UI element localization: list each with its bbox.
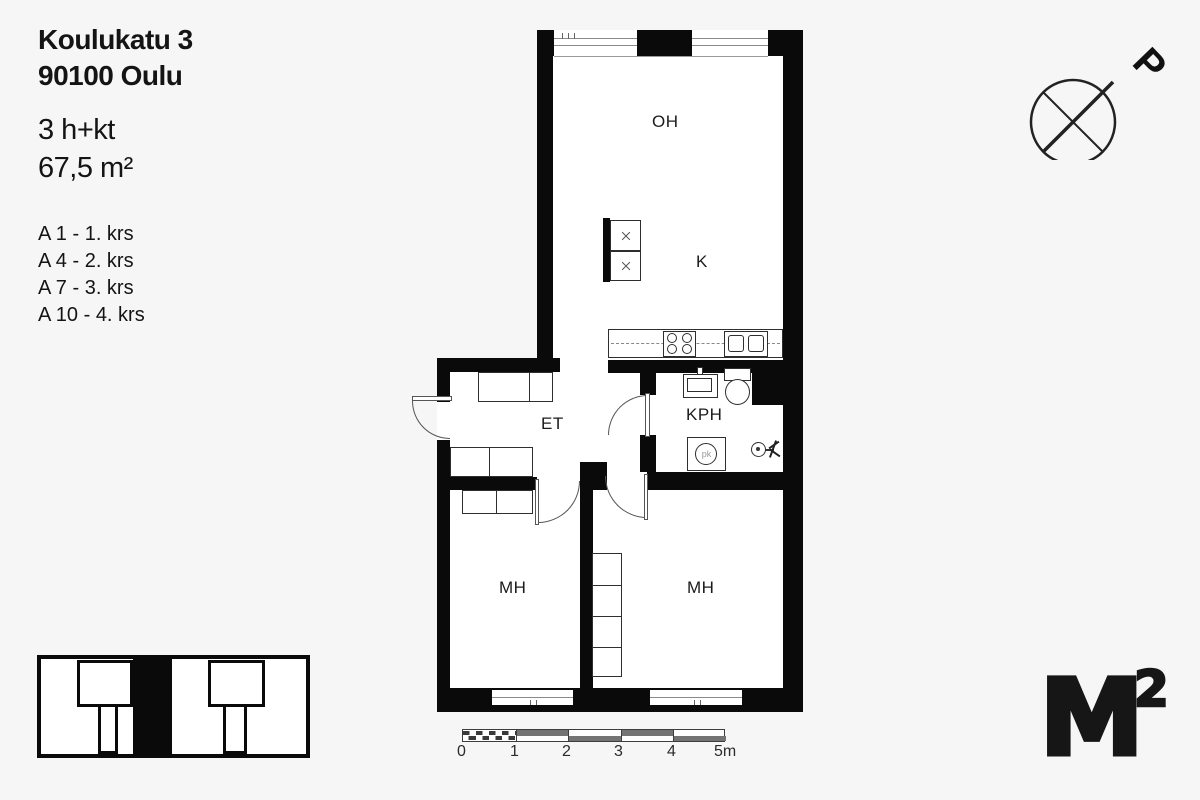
scale-segment <box>516 730 569 736</box>
address-line2: 90100 Oulu <box>38 58 193 94</box>
window <box>554 30 637 56</box>
scale-segment <box>621 730 674 736</box>
unit-floor-3: A 10 - 4. krs <box>38 302 193 329</box>
scale-tick-0: 0 <box>457 743 466 761</box>
kph-door-leaf <box>645 393 650 437</box>
unit-floor-0: A 1 - 1. krs <box>38 221 193 248</box>
wall <box>647 472 783 490</box>
address-line1: Koulukatu 3 <box>38 22 193 58</box>
shower-valve-icon <box>751 442 766 457</box>
locator-unit <box>208 660 265 707</box>
wall <box>640 435 656 475</box>
scale-tick-4: 4 <box>667 743 676 761</box>
scale-tick-1: 1 <box>510 743 519 761</box>
fridge-icon <box>610 220 641 251</box>
washing-machine-label: pk <box>688 449 725 459</box>
wall <box>783 30 803 712</box>
wall <box>537 30 553 360</box>
m2-logo-exponent: 2 <box>1134 660 1169 718</box>
wall <box>437 477 537 490</box>
kitchen-sink-icon <box>724 331 768 357</box>
apartment-type: 3 h+kt <box>38 111 193 149</box>
room-label-mh1: MH <box>499 578 526 598</box>
passage-area <box>556 356 610 374</box>
m2-logo: M 2 <box>1040 660 1180 770</box>
wall <box>437 358 560 372</box>
wardrobe-column <box>592 553 622 677</box>
room-label-et: ET <box>541 414 564 434</box>
header-block: Koulukatu 3 90100 Oulu 3 h+kt 67,5 m² A … <box>38 22 193 329</box>
compass-icon: P <box>1015 25 1190 160</box>
scale-tick-2: 2 <box>562 743 571 761</box>
scale-segment-checker <box>463 730 516 741</box>
wall <box>603 218 610 282</box>
apartment-area: 67,5 m² <box>38 149 193 187</box>
wall <box>637 30 692 56</box>
wardrobe <box>450 447 533 477</box>
wall <box>752 361 783 405</box>
wardrobe <box>462 490 533 514</box>
washbasin-icon <box>683 374 718 398</box>
room-label-mh2: MH <box>687 578 714 598</box>
locator-unit-stem <box>98 704 118 754</box>
unit-floor-2: A 7 - 3. krs <box>38 275 193 302</box>
locator-unit-stem <box>223 704 247 754</box>
freezer-icon <box>610 251 641 281</box>
wall <box>640 361 656 395</box>
window <box>650 690 742 705</box>
room-label-k: K <box>696 252 708 272</box>
mh-right-door-leaf <box>644 474 648 520</box>
locator-highlighted-staircase <box>133 659 172 754</box>
m2-logo-letter: M <box>1040 668 1144 768</box>
unit-floor-1: A 4 - 2. krs <box>38 248 193 275</box>
washing-machine-icon: pk <box>687 437 726 471</box>
scale-bar <box>462 729 725 742</box>
scale-tick-3: 3 <box>614 743 623 761</box>
room-area-upper <box>553 55 783 361</box>
wall-inner-face-line <box>554 56 768 57</box>
window <box>492 690 573 705</box>
door-arc <box>412 401 450 439</box>
scale-segment <box>673 736 726 742</box>
building-locator <box>37 655 310 758</box>
scale-segment <box>568 736 621 742</box>
toilet-icon <box>725 379 750 405</box>
floorplan-page: Koulukatu 3 90100 Oulu 3 h+kt 67,5 m² A … <box>0 0 1200 800</box>
scale-tick-5m: 5m <box>714 743 736 761</box>
window <box>692 30 768 56</box>
room-label-kph: KPH <box>686 405 722 425</box>
wardrobe <box>478 372 553 402</box>
stove-icon <box>663 331 696 357</box>
compass-north-label: P <box>1124 40 1174 90</box>
locator-unit <box>77 660 133 707</box>
room-label-oh: OH <box>652 112 679 132</box>
